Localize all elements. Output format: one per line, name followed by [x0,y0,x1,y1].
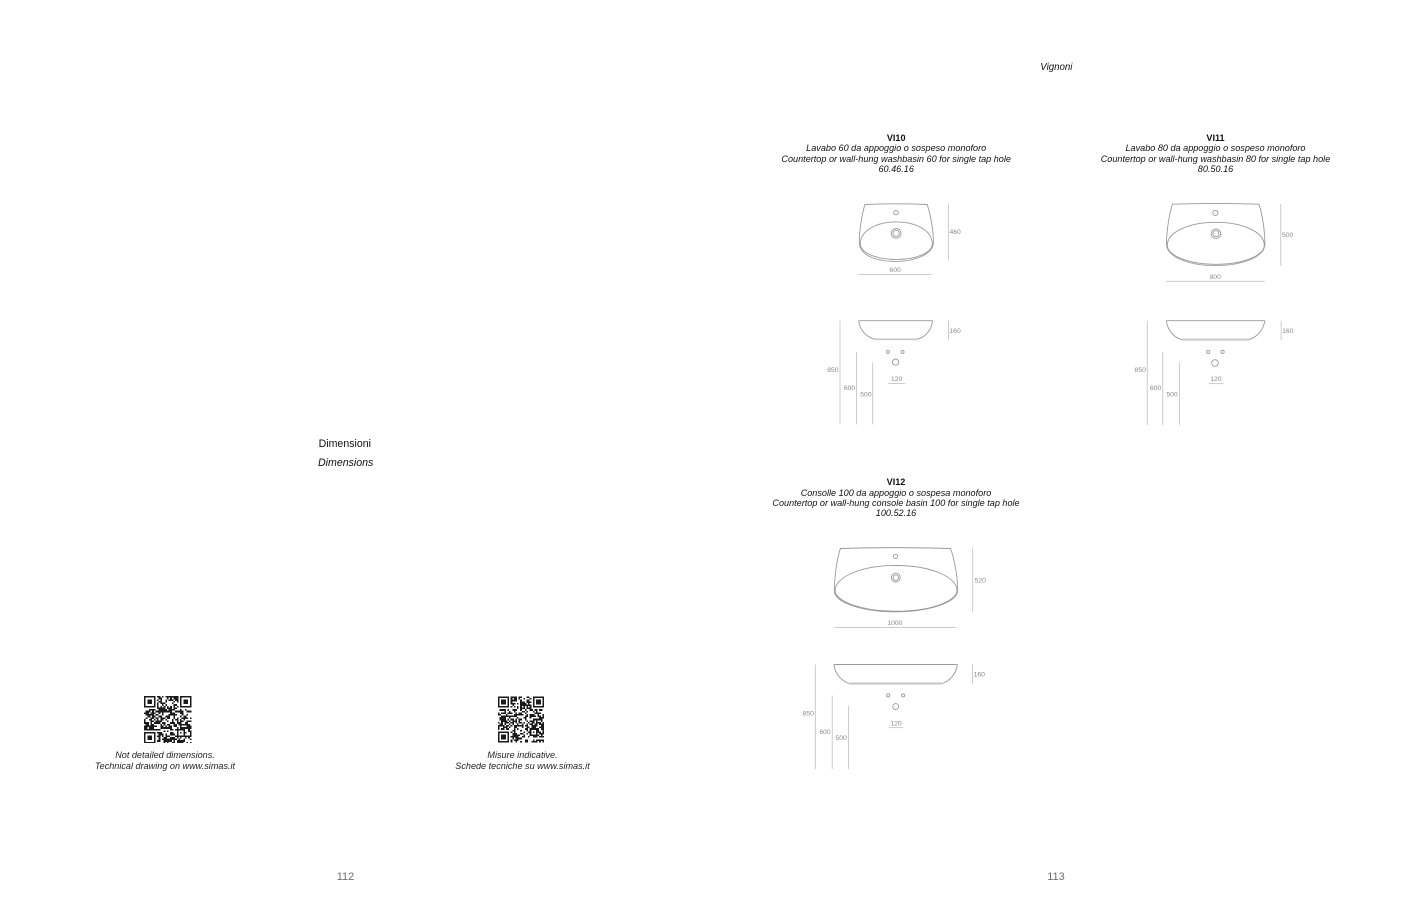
svg-text:600: 600 [844,385,856,392]
svg-text:600: 600 [889,267,901,274]
svg-text:500: 500 [860,391,872,398]
svg-text:160: 160 [949,328,961,335]
svg-text:520: 520 [975,577,987,584]
svg-text:850: 850 [827,367,839,374]
svg-text:160: 160 [974,671,986,678]
svg-text:120: 120 [890,720,902,727]
svg-text:800: 800 [1210,274,1222,281]
svg-text:600: 600 [819,729,831,736]
svg-text:120: 120 [1210,376,1222,383]
svg-text:500: 500 [1166,391,1178,398]
svg-text:850: 850 [1135,367,1147,374]
svg-text:460: 460 [950,229,962,236]
svg-text:600: 600 [1150,385,1162,392]
svg-text:1000: 1000 [887,620,902,627]
svg-text:120: 120 [891,376,903,383]
svg-text:850: 850 [803,711,815,718]
svg-text:160: 160 [1282,328,1294,335]
svg-text:500: 500 [1282,232,1294,239]
svg-text:500: 500 [835,735,847,742]
